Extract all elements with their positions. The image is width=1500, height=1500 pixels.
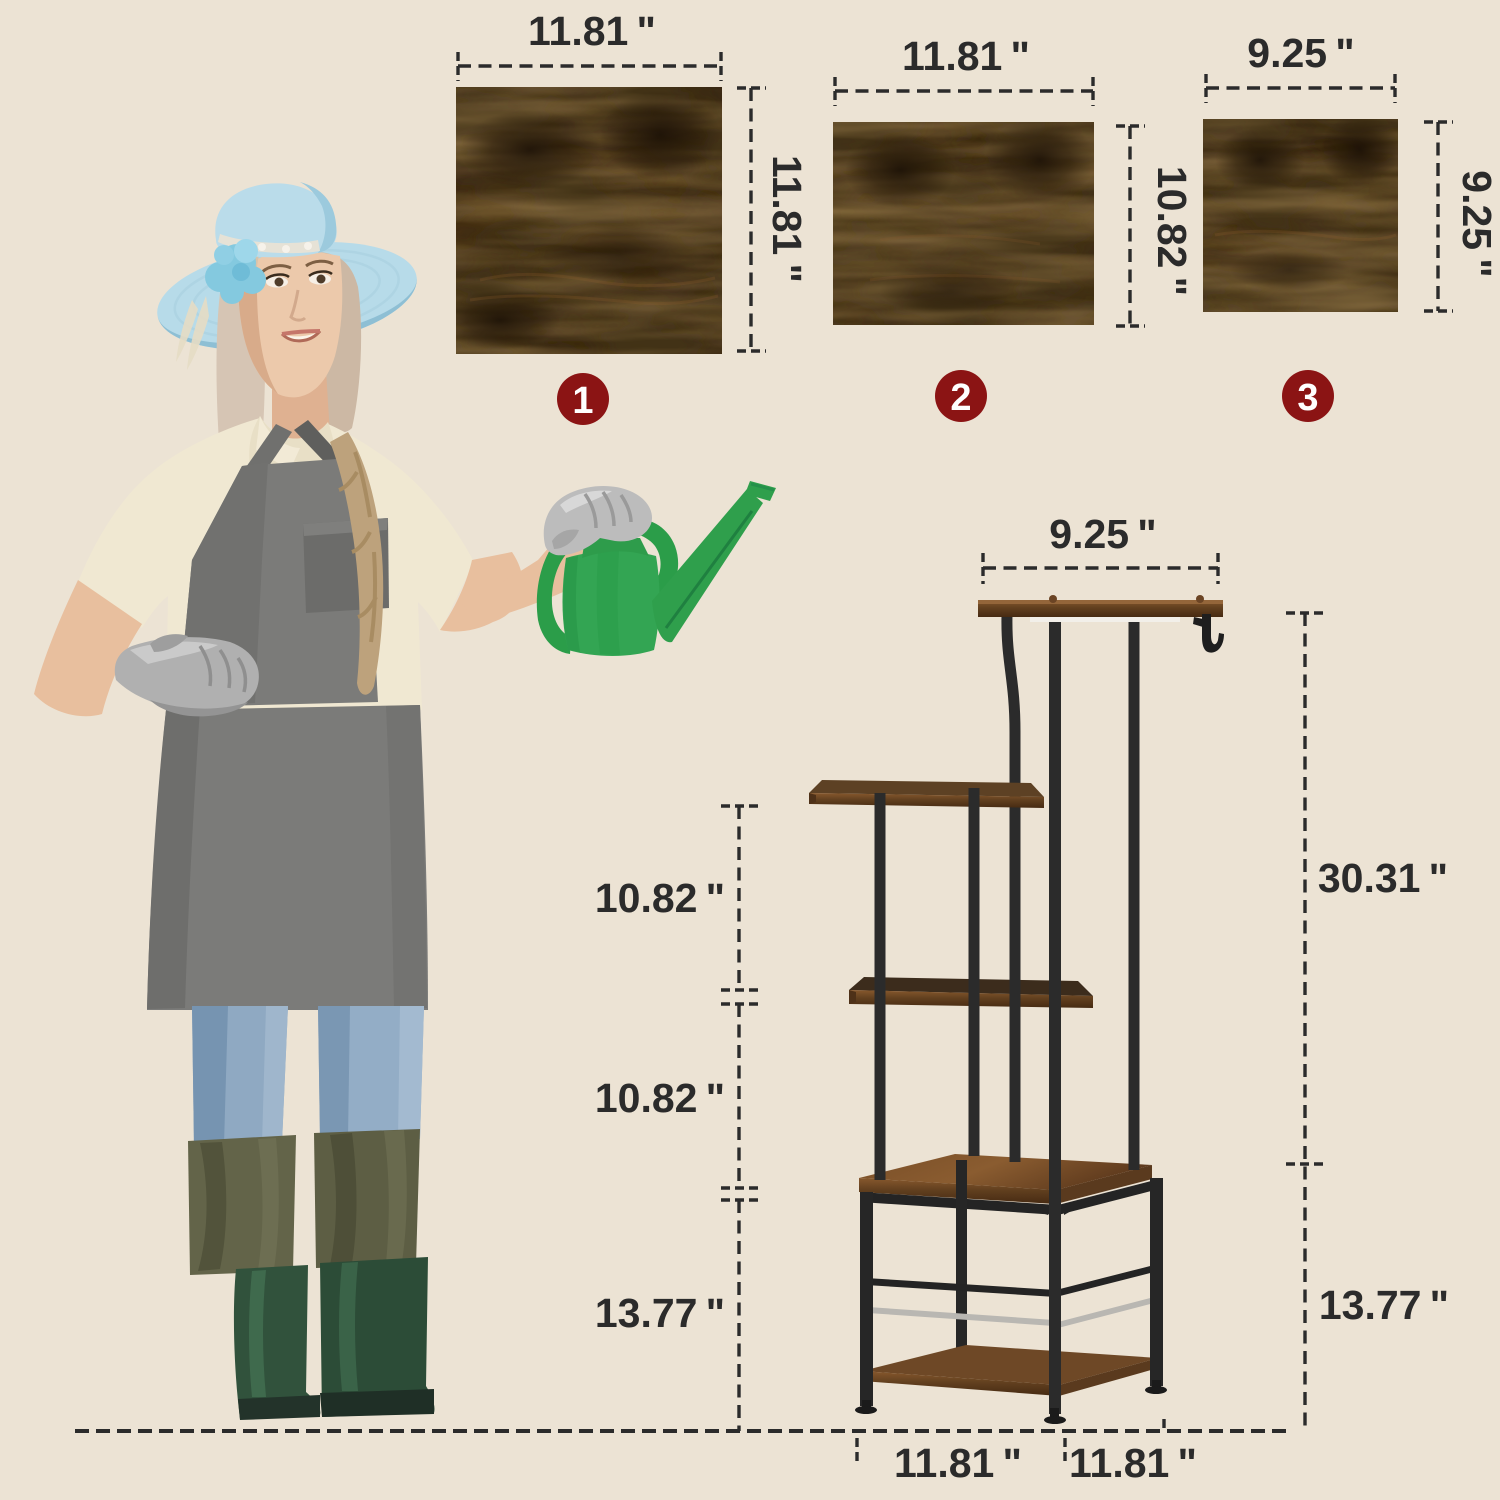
svg-text:3: 3: [1297, 377, 1318, 419]
svg-text:30.31 ": 30.31 ": [1318, 855, 1448, 901]
svg-text:10.82 ": 10.82 ": [595, 1075, 725, 1121]
svg-text:13.77 ": 13.77 ": [595, 1290, 725, 1336]
svg-text:9.25 ": 9.25 ": [1454, 170, 1500, 277]
svg-text:11.81 ": 11.81 ": [528, 8, 656, 54]
svg-text:10.82 ": 10.82 ": [595, 875, 725, 921]
svg-text:1: 1: [572, 380, 593, 422]
svg-text:11.81 ": 11.81 ": [764, 155, 810, 283]
svg-text:11.81 ": 11.81 ": [1069, 1440, 1197, 1486]
svg-text:2: 2: [950, 377, 971, 419]
svg-text:11.81 ": 11.81 ": [902, 33, 1030, 79]
svg-text:11.81 ": 11.81 ": [894, 1440, 1022, 1486]
svg-text:9.25 ": 9.25 ": [1247, 30, 1354, 76]
svg-text:13.77 ": 13.77 ": [1319, 1282, 1449, 1328]
svg-text:9.25 ": 9.25 ": [1049, 511, 1156, 557]
svg-text:10.82 ": 10.82 ": [1149, 166, 1195, 296]
